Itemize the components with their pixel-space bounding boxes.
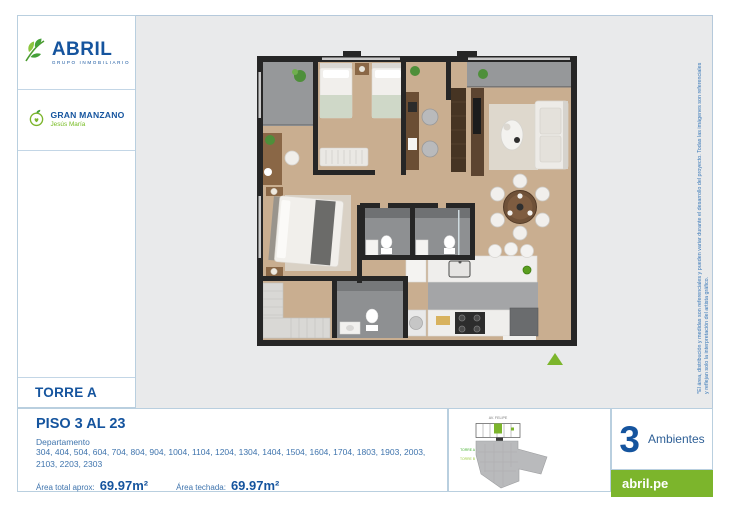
floors-title: PISO 3 AL 23 xyxy=(36,416,447,432)
street-label: AV. FELIPE xyxy=(488,416,507,420)
rooms-count-card: 3 Ambientes xyxy=(611,408,713,470)
abril-leaf-icon xyxy=(23,37,47,68)
rooms-label: Ambientes xyxy=(648,432,705,446)
area-total-value: 69.97m² xyxy=(100,478,148,493)
area-total-label: Área total aprox: xyxy=(36,483,95,492)
balcony-right xyxy=(467,62,571,88)
project-district: Jesús María xyxy=(50,121,124,128)
department-label: Departamento xyxy=(36,437,447,447)
abril-tagline: GRUPO INMOBILIARIO xyxy=(52,61,130,66)
floor-plan-render xyxy=(250,48,585,370)
tower-label: TORRE A xyxy=(35,385,97,400)
bathroom-1 xyxy=(365,208,410,256)
flyer-page: ABRIL GRUPO INMOBILIARIO GRAN MANZANO Je… xyxy=(0,0,730,516)
area-roofed-value: 69.97m² xyxy=(231,478,279,493)
balcony-left xyxy=(261,60,314,126)
rooms-count: 3 xyxy=(619,421,640,458)
site-plan-diagram: AV. FELIPE TORRE A TORRE B xyxy=(455,411,605,489)
tower-a-label: TORRE A xyxy=(460,448,476,452)
project-name: GRAN MANZANO xyxy=(50,111,124,121)
left-panel: ABRIL GRUPO INMOBILIARIO GRAN MANZANO Je… xyxy=(17,15,136,408)
abril-wordmark: ABRIL xyxy=(52,40,130,59)
bathroom-3 xyxy=(337,281,403,338)
tower-card: TORRE A xyxy=(18,378,135,407)
bathroom-2 xyxy=(415,208,470,256)
living-room xyxy=(489,101,568,170)
project-logo-card: GRAN MANZANO Jesús María xyxy=(18,90,135,151)
website-text: abril.pe xyxy=(622,476,668,491)
apple-icon xyxy=(28,109,45,132)
department-numbers: 304, 404, 504, 604, 704, 804, 904, 1004,… xyxy=(36,447,444,471)
website-link[interactable]: abril.pe xyxy=(611,470,713,497)
disclaimer-text: *El área, distribución y medidas son ref… xyxy=(697,60,711,394)
unit-info-card: PISO 3 AL 23 Departamento 304, 404, 504,… xyxy=(17,408,448,492)
tower-b-label: TORRE B xyxy=(459,457,475,461)
highlighted-unit xyxy=(494,424,502,434)
panel-spacer xyxy=(18,151,135,378)
abril-logo-card: ABRIL GRUPO INMOBILIARIO xyxy=(18,16,135,90)
area-roofed-label: Área techada: xyxy=(176,483,226,492)
site-plan-card: AV. FELIPE TORRE A TORRE B xyxy=(448,408,611,492)
north-arrow-icon xyxy=(547,353,563,365)
